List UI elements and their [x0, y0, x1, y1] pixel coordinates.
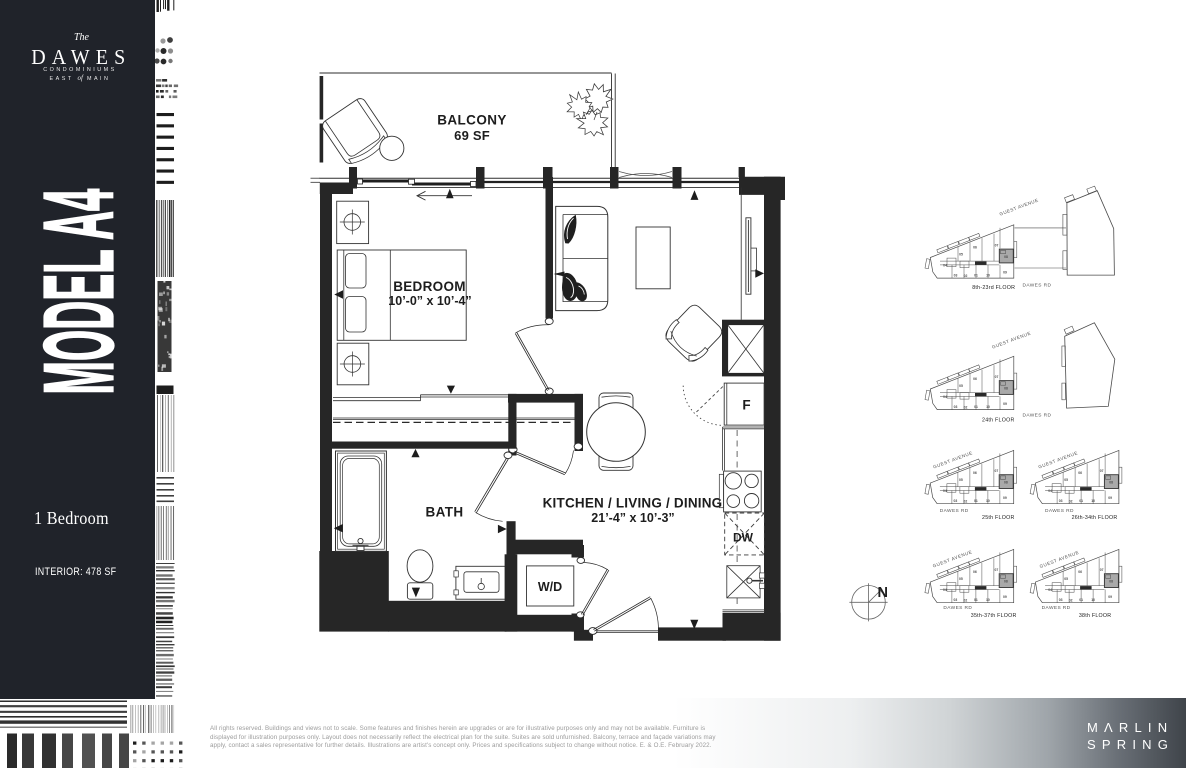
svg-text:26th-34th FLOOR: 26th-34th FLOOR: [1072, 515, 1118, 521]
svg-text:GUEST AVENUE: GUEST AVENUE: [999, 198, 1039, 217]
svg-text:10’-0” x 10’-4”: 10’-0” x 10’-4”: [388, 294, 471, 308]
svg-text:BEDROOM: BEDROOM: [393, 279, 466, 294]
svg-text:N: N: [878, 585, 888, 601]
svg-text:DAWES RD: DAWES RD: [1045, 508, 1074, 514]
svg-text:DAWES RD: DAWES RD: [1042, 605, 1071, 611]
svg-text:BALCONY: BALCONY: [437, 113, 507, 128]
svg-text:69 SF: 69 SF: [454, 128, 490, 143]
svg-text:KITCHEN / LIVING / DINING: KITCHEN / LIVING / DINING: [543, 496, 723, 511]
svg-text:DW: DW: [733, 531, 754, 545]
svg-text:GUEST AVENUE: GUEST AVENUE: [1039, 550, 1080, 569]
svg-text:38th FLOOR: 38th FLOOR: [1079, 613, 1112, 619]
svg-text:DAWES RD: DAWES RD: [1022, 413, 1051, 419]
svg-text:24th FLOOR: 24th FLOOR: [982, 417, 1015, 423]
svg-text:DAWES RD: DAWES RD: [943, 605, 972, 611]
svg-text:DAWES RD: DAWES RD: [940, 508, 969, 514]
svg-text:F: F: [742, 398, 750, 413]
svg-text:GUEST AVENUE: GUEST AVENUE: [991, 331, 1031, 350]
svg-text:25th FLOOR: 25th FLOOR: [982, 515, 1015, 521]
svg-text:W/D: W/D: [538, 580, 562, 594]
svg-text:8th-23rd FLOOR: 8th-23rd FLOOR: [972, 285, 1015, 291]
svg-text:21’-4” x 10’-3”: 21’-4” x 10’-3”: [591, 511, 674, 525]
svg-text:BATH: BATH: [425, 505, 463, 520]
svg-text:DAWES RD: DAWES RD: [1022, 283, 1051, 289]
svg-text:35th-37th FLOOR: 35th-37th FLOOR: [971, 613, 1017, 619]
svg-text:GUEST AVENUE: GUEST AVENUE: [932, 549, 973, 568]
